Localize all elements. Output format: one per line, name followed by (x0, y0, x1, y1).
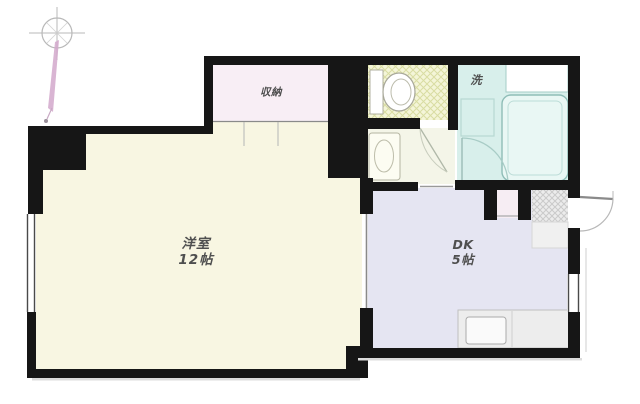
toilet-fixture (370, 70, 415, 114)
window-left (26, 214, 36, 312)
kitchen-counter (458, 310, 570, 348)
washbasin (369, 133, 400, 180)
window-right (567, 274, 581, 312)
closet-floor (213, 64, 329, 122)
niche-floor (497, 190, 518, 218)
compass-icon (29, 7, 85, 123)
entrance-floor (532, 190, 568, 222)
front-door-arc (580, 191, 613, 231)
bathtub (502, 95, 568, 181)
bath-counter (506, 64, 568, 92)
entrance-step (532, 222, 568, 248)
floor-plan-drawing (0, 0, 640, 404)
floor-plan: 洋室 12帖 DK 5帖 収納 洗 (0, 0, 640, 404)
